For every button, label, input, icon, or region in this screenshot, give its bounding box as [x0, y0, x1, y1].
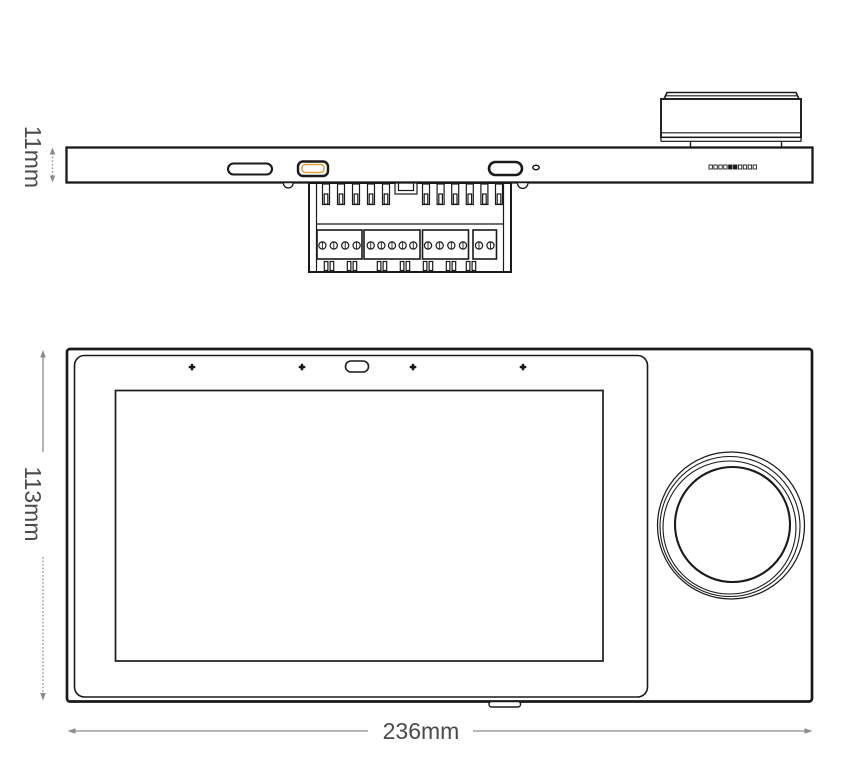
tab-7a: [466, 262, 470, 271]
tab-2b: [353, 262, 357, 271]
tab-3a: [377, 262, 381, 271]
technical-drawing-page: 11mm 113mm 236mm: [0, 0, 868, 783]
tab-6a: [446, 262, 450, 271]
sensor-dot-lobe: [301, 364, 304, 367]
dim-thickness-label: 11mm: [20, 126, 46, 188]
knob-side-skirt: [661, 138, 801, 142]
pin-1: [709, 165, 712, 169]
pin-3: [719, 165, 722, 169]
usb-port: [298, 162, 328, 177]
tab-4b: [406, 262, 410, 271]
dim-width: 236mm: [68, 718, 813, 744]
tab-4a: [400, 262, 404, 271]
dim-height: 113mm: [20, 350, 46, 701]
sensor-dot-lobe: [524, 366, 527, 369]
oval-slot-left: [228, 164, 272, 175]
notch-right: [518, 183, 528, 188]
panel-slab-outline: [67, 148, 813, 183]
dim-thickness: 11mm: [20, 126, 55, 188]
pin-10: [753, 165, 756, 169]
sensor-dot-lobe: [410, 366, 413, 369]
dim-height-arrow-down: [40, 693, 46, 701]
tab-5b: [429, 262, 433, 271]
tab-6b: [452, 262, 456, 271]
sensor-dot-lobe: [193, 366, 196, 369]
sensor-dot-lobe: [522, 368, 525, 371]
oval-slot-right: [489, 162, 522, 175]
sensor-dot-lobe: [412, 364, 415, 367]
speaker-oval: [346, 361, 369, 372]
sensor-dot-lobe: [191, 364, 194, 367]
indicator-dot: [533, 165, 539, 169]
pin-2: [714, 165, 717, 169]
tab-7b: [472, 262, 476, 271]
pin-5: [729, 165, 732, 169]
knob-side-view: [661, 93, 801, 148]
dim-height-label: 113mm: [20, 467, 46, 542]
technical-drawing: 11mm 113mm 236mm: [0, 0, 868, 783]
tab-1a: [324, 262, 328, 271]
side-view: 11mm: [20, 93, 813, 273]
sensor-dot-lobe: [522, 364, 525, 367]
sensor-dot-lobe: [299, 366, 302, 369]
sensor-dot-lobe: [520, 366, 523, 369]
sensor-dot-lobe: [191, 368, 194, 371]
pin-6: [734, 165, 737, 169]
tab-5a: [423, 262, 427, 271]
pin-4: [724, 165, 727, 169]
knob-side-body: [661, 99, 801, 138]
sensor-dot-lobe: [189, 366, 192, 369]
notch-left: [284, 183, 294, 188]
screen-outline: [116, 391, 604, 662]
tab-3b: [383, 262, 387, 271]
dim-width-arrow-right: [805, 728, 813, 734]
dim-thickness-arrow-down: [50, 176, 56, 183]
dim-width-label: 236mm: [383, 718, 460, 744]
pin-9: [748, 165, 751, 169]
sensor-dot-lobe: [303, 366, 306, 369]
sensor-dot-lobe: [414, 366, 417, 369]
terminal-assembly: [309, 183, 511, 272]
pin-8: [743, 165, 746, 169]
terminal-tabs: [324, 262, 475, 271]
front-view: 113mm 236mm: [20, 349, 813, 744]
tab-1b: [330, 262, 334, 271]
sensor-dot-lobe: [301, 368, 304, 371]
tab-2a: [347, 262, 351, 271]
dim-width-arrow-left: [68, 728, 76, 734]
pin-7: [738, 165, 741, 169]
bottom-clip: [489, 702, 521, 708]
sensor-dot-lobe: [412, 368, 415, 371]
